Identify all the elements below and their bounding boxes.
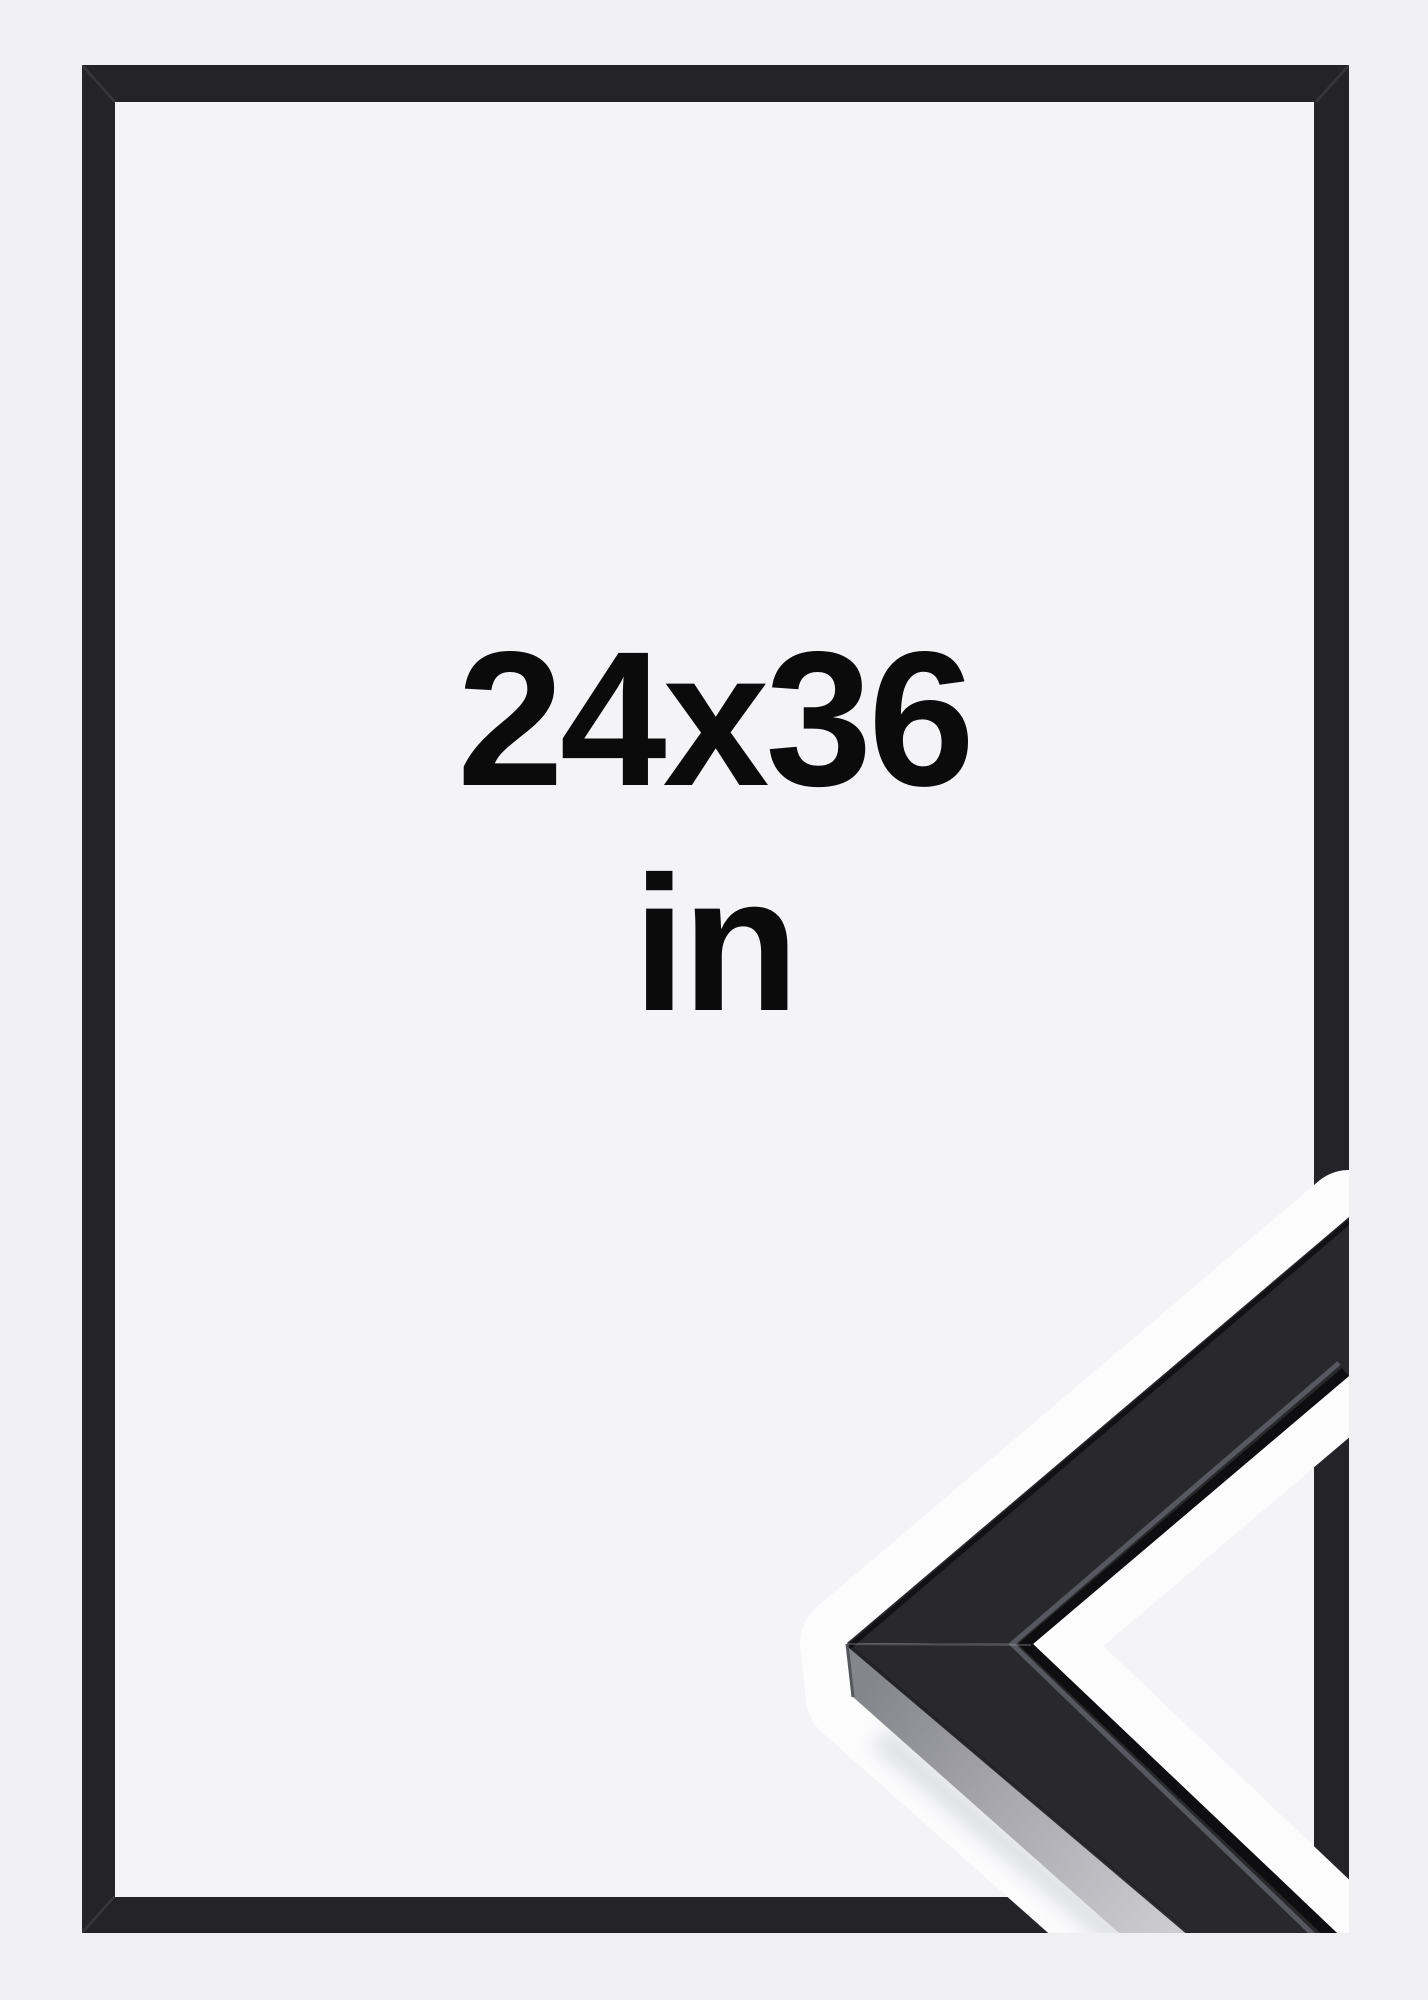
product-image: 24x36 in <box>0 0 1428 2000</box>
unit-label: in <box>0 831 1428 1056</box>
size-label: 24x36 <box>0 606 1428 831</box>
corner-miter-seam <box>848 1644 1031 1645</box>
size-overlay: 24x36 in <box>0 606 1428 1056</box>
